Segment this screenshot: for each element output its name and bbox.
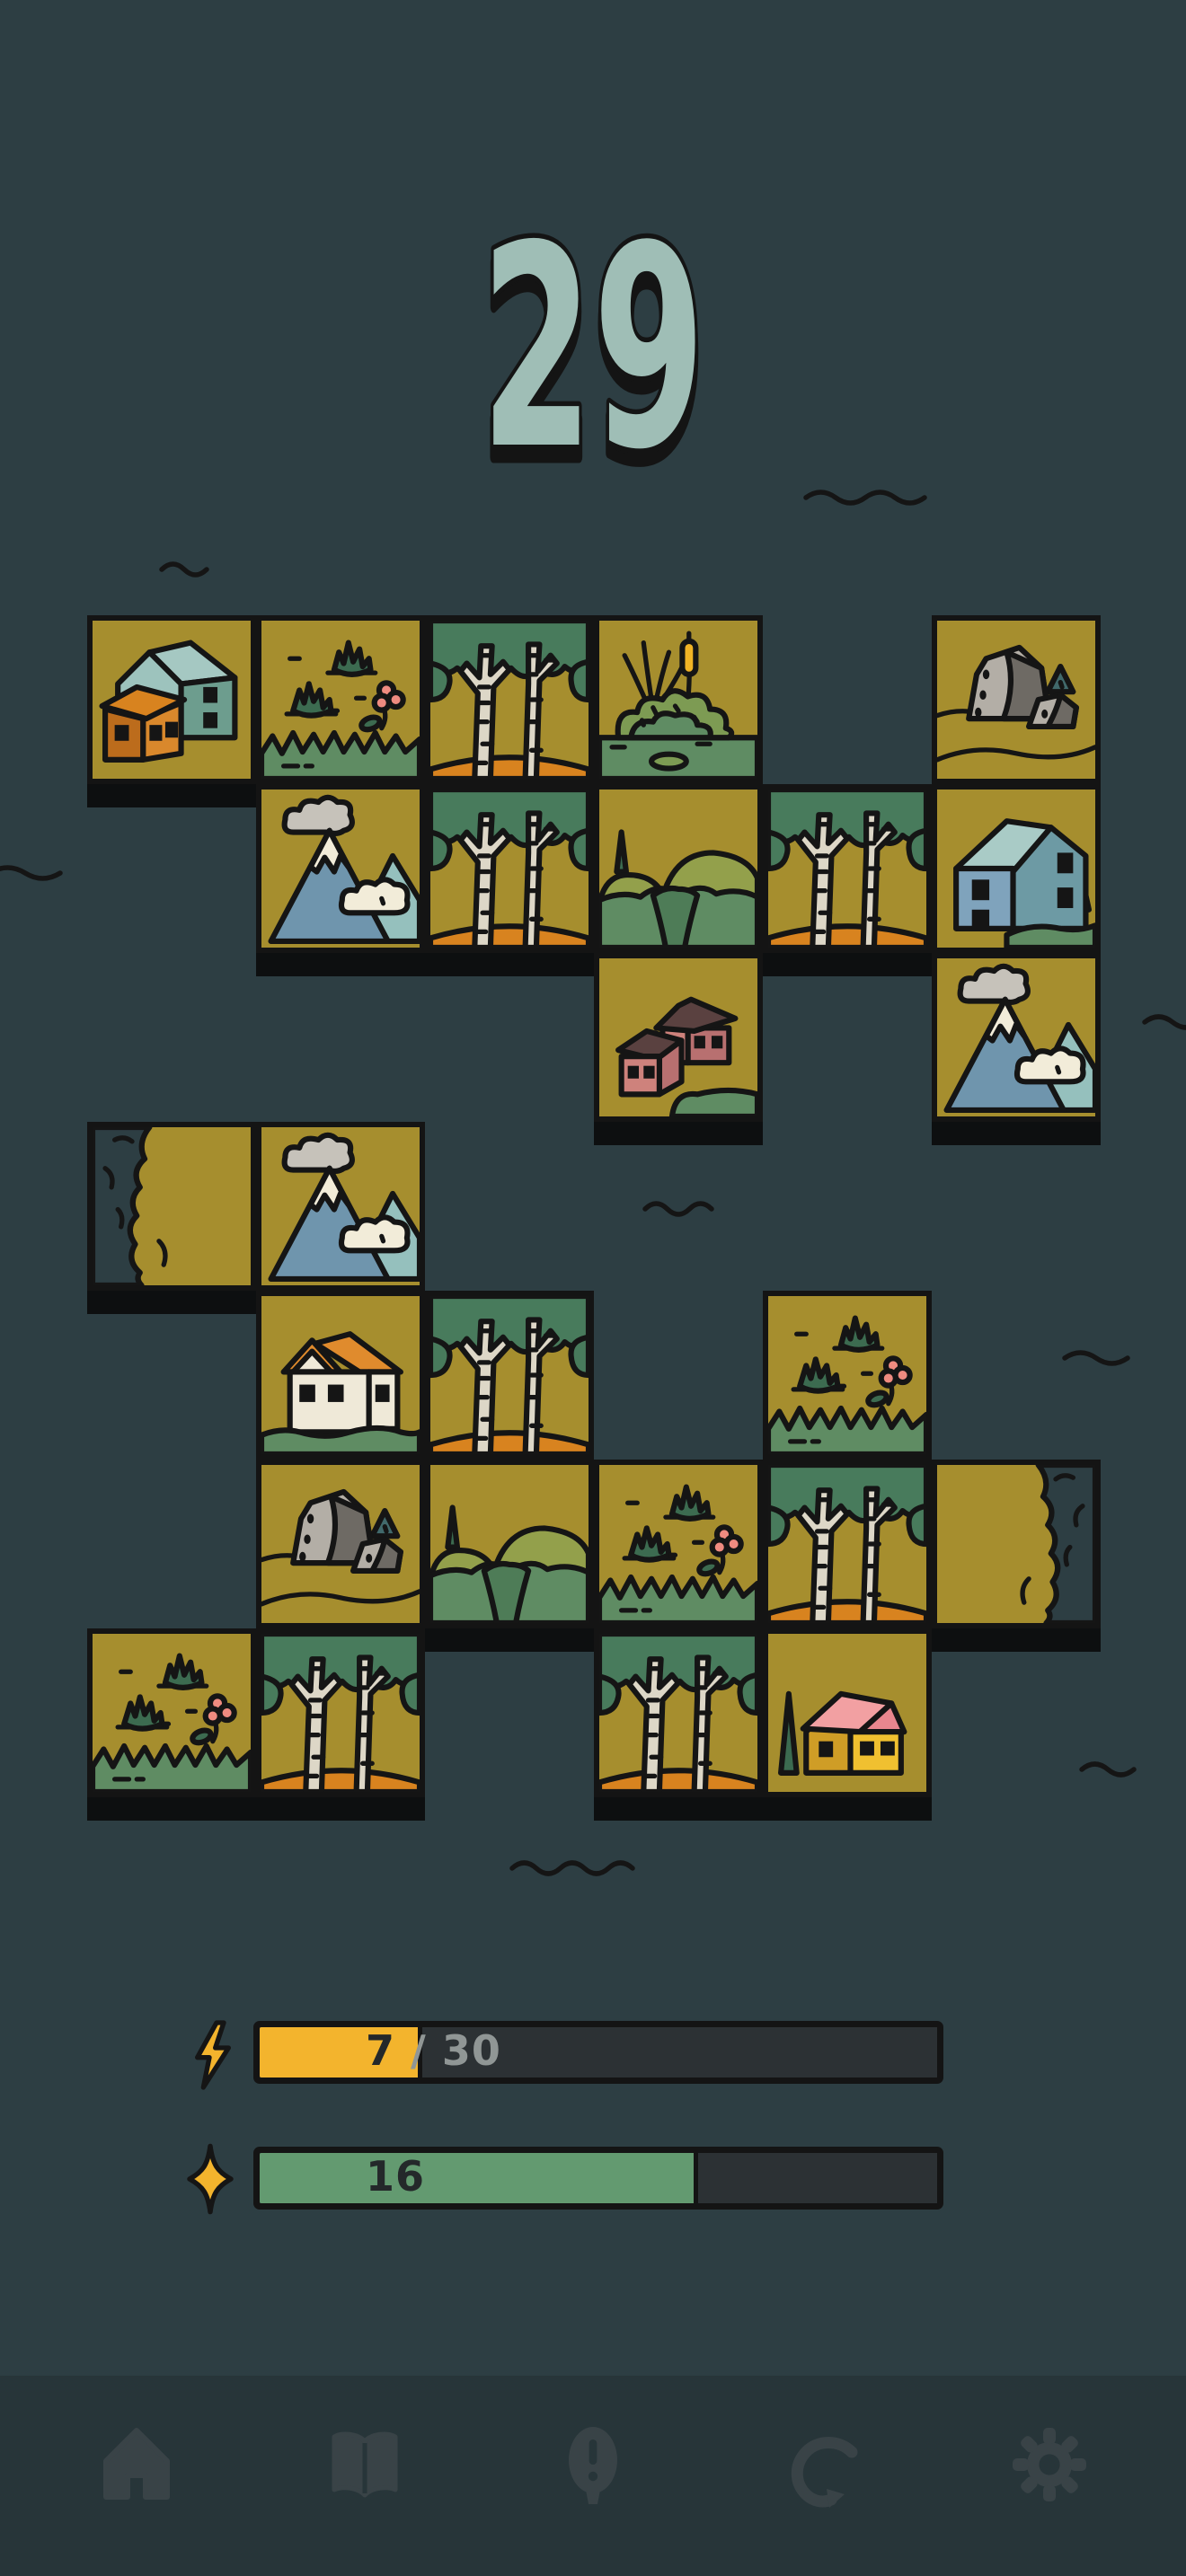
tile-art-rocks — [937, 621, 1095, 779]
tile-edge-right[interactable] — [932, 1460, 1101, 1628]
tile-art-grass — [93, 1634, 251, 1792]
energy-value: 7 — [366, 2026, 395, 2075]
tile-art-birch — [768, 1465, 926, 1623]
tile-grass[interactable] — [87, 1628, 256, 1797]
tile-art-birch — [261, 1634, 420, 1792]
tile-birch[interactable] — [594, 1628, 763, 1797]
moves-counter: 29 29 — [0, 207, 1186, 485]
tile-house-blue[interactable] — [932, 784, 1101, 953]
energy-progress-label: 7 / 30 — [366, 2026, 501, 2075]
tile-art-pond — [599, 621, 757, 779]
hint-button[interactable] — [539, 2415, 647, 2514]
tile-birch[interactable] — [425, 784, 594, 953]
tile-hills[interactable] — [594, 784, 763, 953]
lightbulb-icon — [550, 2422, 636, 2508]
tile-house-red[interactable] — [594, 953, 763, 1122]
undo-button[interactable] — [767, 2415, 875, 2514]
energy-max: / 30 — [411, 2026, 501, 2075]
tile-hills[interactable] — [425, 1460, 594, 1628]
tile-edge-left[interactable] — [87, 1122, 256, 1291]
tile-art-grass — [599, 1465, 757, 1623]
tile-art-mountain — [261, 790, 420, 948]
tile-rocks[interactable] — [256, 1460, 425, 1628]
tile-art-house-white — [261, 1296, 420, 1454]
tile-art-hills — [599, 790, 757, 948]
squiggle-decoration — [1139, 1010, 1186, 1035]
squiggle-decoration — [801, 485, 930, 510]
score-progress-label: 16 — [366, 2152, 425, 2201]
tile-art-birch — [768, 790, 926, 948]
tile-grass[interactable] — [763, 1291, 932, 1460]
tile-birch[interactable] — [763, 784, 932, 953]
tile-rocks[interactable] — [932, 615, 1101, 784]
tile-birch[interactable] — [763, 1460, 932, 1628]
tile-art-birch — [599, 1634, 757, 1792]
tile-art-grass — [261, 621, 420, 779]
tile-art-grass — [768, 1296, 926, 1454]
undo-icon — [778, 2422, 864, 2508]
book-icon — [322, 2422, 408, 2508]
home-icon — [93, 2422, 180, 2508]
lightning-icon — [183, 2019, 243, 2091]
tile-art-house-yellow — [768, 1634, 926, 1792]
tile-art-house-red — [599, 958, 757, 1116]
tile-mountain[interactable] — [256, 784, 425, 953]
gear-icon — [1006, 2422, 1093, 2508]
score-progress-fill — [260, 2153, 698, 2203]
tile-house-yellow[interactable] — [763, 1628, 932, 1797]
tile-birch[interactable] — [425, 615, 594, 784]
sparkle-icon — [176, 2141, 244, 2217]
tile-art-hills — [430, 1465, 589, 1623]
squiggle-decoration — [1059, 1345, 1133, 1371]
tile-art-birch — [430, 621, 589, 779]
tile-art-mountain — [261, 1127, 420, 1285]
tile-grass[interactable] — [256, 615, 425, 784]
levels-book-button[interactable] — [311, 2415, 419, 2514]
squiggle-decoration — [640, 1196, 717, 1222]
squiggle-decoration — [0, 860, 66, 886]
tile-art-rocks — [261, 1465, 420, 1623]
tile-mountain[interactable] — [932, 953, 1101, 1122]
tile-mountain[interactable] — [256, 1122, 425, 1291]
settings-button[interactable] — [996, 2415, 1103, 2514]
tile-art-house-teal — [93, 621, 251, 779]
tile-art-house-blue — [937, 790, 1095, 948]
tile-art-birch — [430, 790, 589, 948]
squiggle-decoration — [156, 557, 212, 582]
squiggle-decoration — [507, 1856, 638, 1881]
tile-pond[interactable] — [594, 615, 763, 784]
tile-art-edge-right — [937, 1465, 1095, 1623]
counter-value: 29 — [481, 207, 705, 485]
bottom-nav — [0, 2376, 1186, 2576]
tile-art-birch — [430, 1296, 589, 1454]
game-screen: 29 29 — [0, 0, 1186, 2576]
energy-progress-bar: 7 / 30 — [253, 2021, 943, 2084]
home-button[interactable] — [83, 2415, 190, 2514]
lightning-icon — [183, 2019, 243, 2091]
tile-art-edge-left — [93, 1127, 251, 1285]
tile-house-teal[interactable] — [87, 615, 256, 784]
score-progress-bar: 16 — [253, 2147, 943, 2210]
sparkle-icon — [176, 2141, 244, 2217]
tile-birch[interactable] — [425, 1291, 594, 1460]
tile-birch[interactable] — [256, 1628, 425, 1797]
score-value: 16 — [366, 2152, 425, 2201]
squiggle-decoration — [1076, 1757, 1139, 1782]
tile-art-mountain — [937, 958, 1095, 1116]
tile-house-white[interactable] — [256, 1291, 425, 1460]
tile-grass[interactable] — [594, 1460, 763, 1628]
